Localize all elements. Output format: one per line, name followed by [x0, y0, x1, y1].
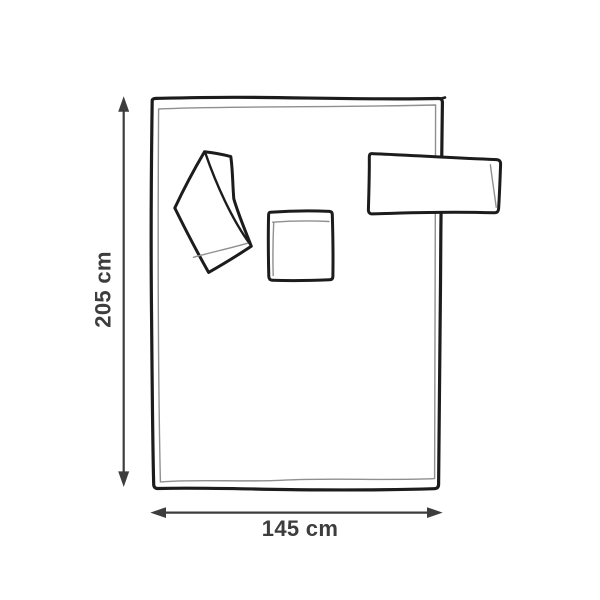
height-label: 205 cm: [91, 251, 116, 327]
width-label: 145 cm: [262, 516, 338, 541]
pocket-side-seam: [273, 223, 274, 276]
pocket: [268, 211, 333, 281]
width-arrowhead-right: [427, 507, 443, 518]
width-dimension: 145 cm: [150, 507, 442, 541]
dimension-diagram: 205 cm 145 cm: [0, 0, 600, 600]
height-dimension: 205 cm: [91, 96, 130, 487]
sleeve-cuff-outline: [368, 154, 500, 214]
height-arrowhead-bottom: [118, 471, 129, 487]
height-arrowhead-top: [118, 96, 129, 112]
sleeve-cuff: [368, 154, 500, 214]
blanket-corner-overshoot: [441, 98, 446, 99]
diagram-canvas: 205 cm 145 cm: [0, 0, 600, 600]
width-arrowhead-left: [150, 507, 166, 518]
